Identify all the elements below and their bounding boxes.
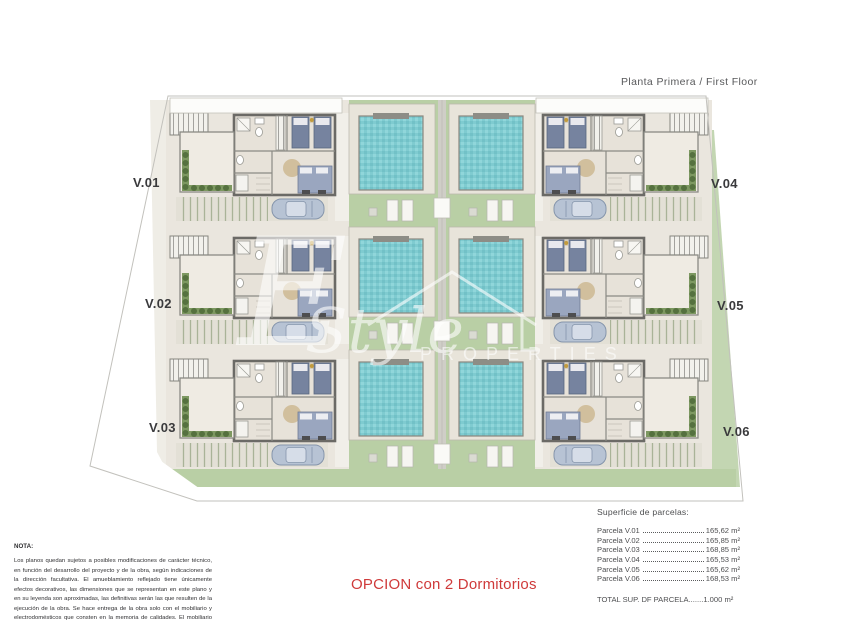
unit-label-v01: V.01 bbox=[133, 175, 160, 190]
area-value: 165,53 m² bbox=[706, 555, 740, 564]
area-row: Parcela V.06168,53 m² bbox=[597, 574, 740, 584]
area-value: 168,85 m² bbox=[706, 545, 740, 554]
bottom-lawn bbox=[166, 469, 736, 487]
villa-unit-v05 bbox=[527, 223, 712, 346]
villa-unit-v01 bbox=[166, 100, 351, 223]
left-margin-strip bbox=[150, 100, 166, 469]
area-label: Parcela V.01 bbox=[597, 526, 640, 535]
dot-leader bbox=[643, 532, 704, 533]
area-value: 165,85 m² bbox=[706, 536, 740, 545]
villa-unit-v06 bbox=[527, 346, 712, 469]
area-row: Parcela V.02165,85 m² bbox=[597, 536, 740, 546]
area-label: Parcela V.06 bbox=[597, 574, 640, 583]
areas-title: Superficie de parcelas: bbox=[597, 507, 740, 517]
area-label: Parcela V.04 bbox=[597, 555, 640, 564]
area-label: Parcela V.02 bbox=[597, 536, 640, 545]
unit-label-v05: V.05 bbox=[717, 298, 744, 313]
note-body: Los planos quedan sujetos a posibles mod… bbox=[14, 557, 212, 620]
area-row: Parcela V.03168,85 m² bbox=[597, 545, 740, 555]
dot-leader bbox=[643, 561, 704, 562]
unit-label-v06: V.06 bbox=[723, 424, 750, 439]
dot-leader bbox=[643, 571, 704, 572]
pool-v04 bbox=[449, 100, 535, 223]
dot-leader bbox=[643, 580, 704, 581]
parcel-areas-table: Superficie de parcelas: Parcela V.01165,… bbox=[597, 507, 740, 604]
dot-leader bbox=[643, 542, 704, 543]
area-row: Parcela V.01165,62 m² bbox=[597, 526, 740, 536]
unit-label-v04: V.04 bbox=[711, 176, 738, 191]
option-label: OPCION con 2 Dormitorios bbox=[351, 576, 537, 593]
pool-v01 bbox=[349, 100, 435, 223]
area-value: 165,62 m² bbox=[706, 526, 740, 535]
unit-label-v03: V.03 bbox=[149, 420, 176, 435]
area-row: Parcela V.04165,53 m² bbox=[597, 555, 740, 565]
watermark-word-properties: PROPERTIES bbox=[420, 344, 626, 364]
areas-total: TOTAL SUP. DF PARCELA.......1.000 m² bbox=[597, 595, 740, 604]
note-block: NOTA: Los planos quedan sujetos a posibl… bbox=[14, 543, 212, 620]
page: E Style PROPERTIES Planta Primera / Firs… bbox=[0, 0, 850, 620]
note-title: NOTA: bbox=[14, 543, 212, 550]
area-value: 165,62 m² bbox=[706, 565, 740, 574]
plan-title: Planta Primera / First Floor bbox=[621, 76, 758, 88]
area-value: 168,53 m² bbox=[706, 574, 740, 583]
area-label: Parcela V.05 bbox=[597, 565, 640, 574]
unit-label-v02: V.02 bbox=[145, 296, 172, 311]
area-label: Parcela V.03 bbox=[597, 545, 640, 554]
dot-leader bbox=[643, 551, 704, 552]
villa-unit-v04 bbox=[527, 100, 712, 223]
area-row: Parcela V.05165,62 m² bbox=[597, 565, 740, 575]
